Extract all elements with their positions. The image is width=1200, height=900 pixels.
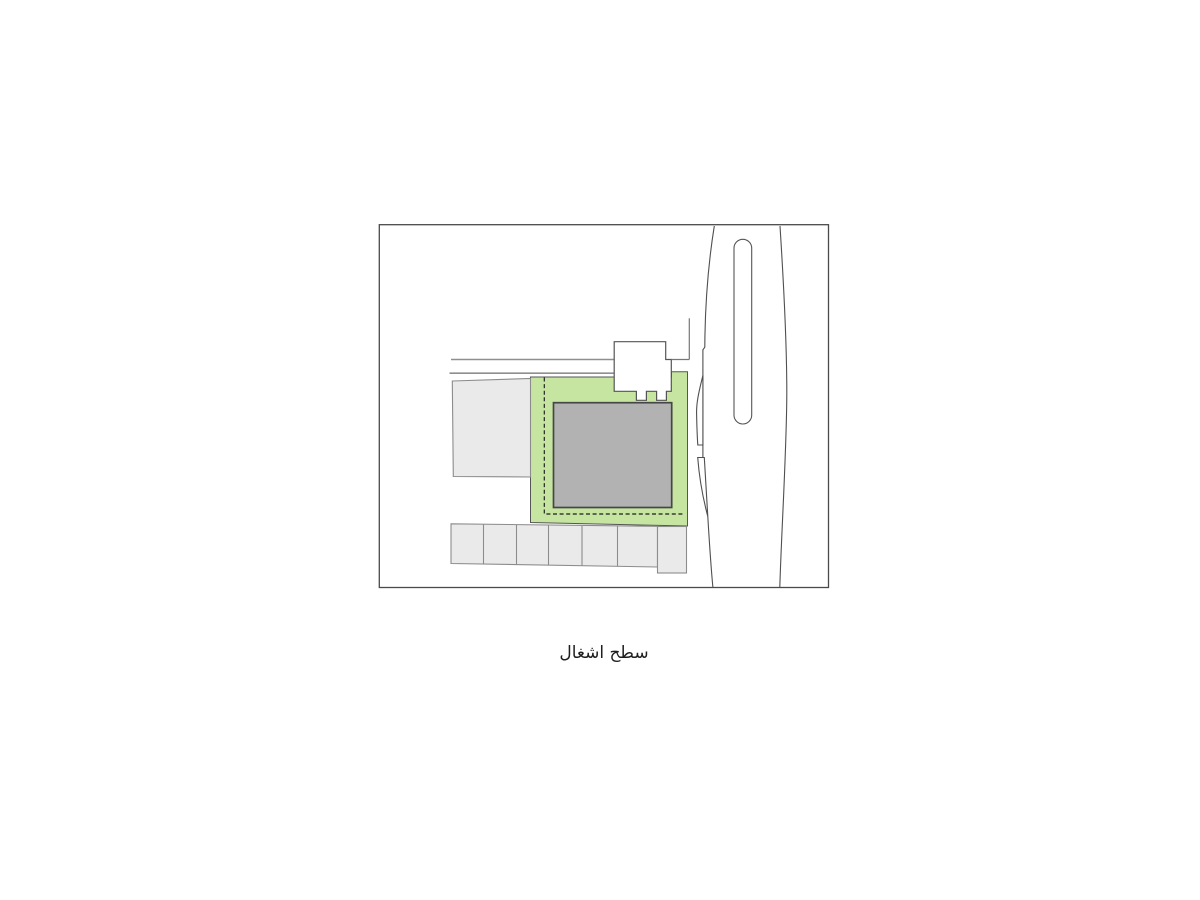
building-footprint: [554, 403, 672, 508]
entrance-vestibule: [614, 342, 671, 401]
plan-caption: سطح اشغال: [504, 643, 704, 663]
adjacent-row-slab: [451, 524, 658, 567]
adjacent-building-left: [452, 379, 530, 478]
median-island: [734, 239, 752, 424]
site-plan-page: سطح اشغال: [0, 0, 1200, 900]
site-plan-drawing: [0, 0, 1200, 900]
adjacent-corner-building: [658, 527, 687, 574]
